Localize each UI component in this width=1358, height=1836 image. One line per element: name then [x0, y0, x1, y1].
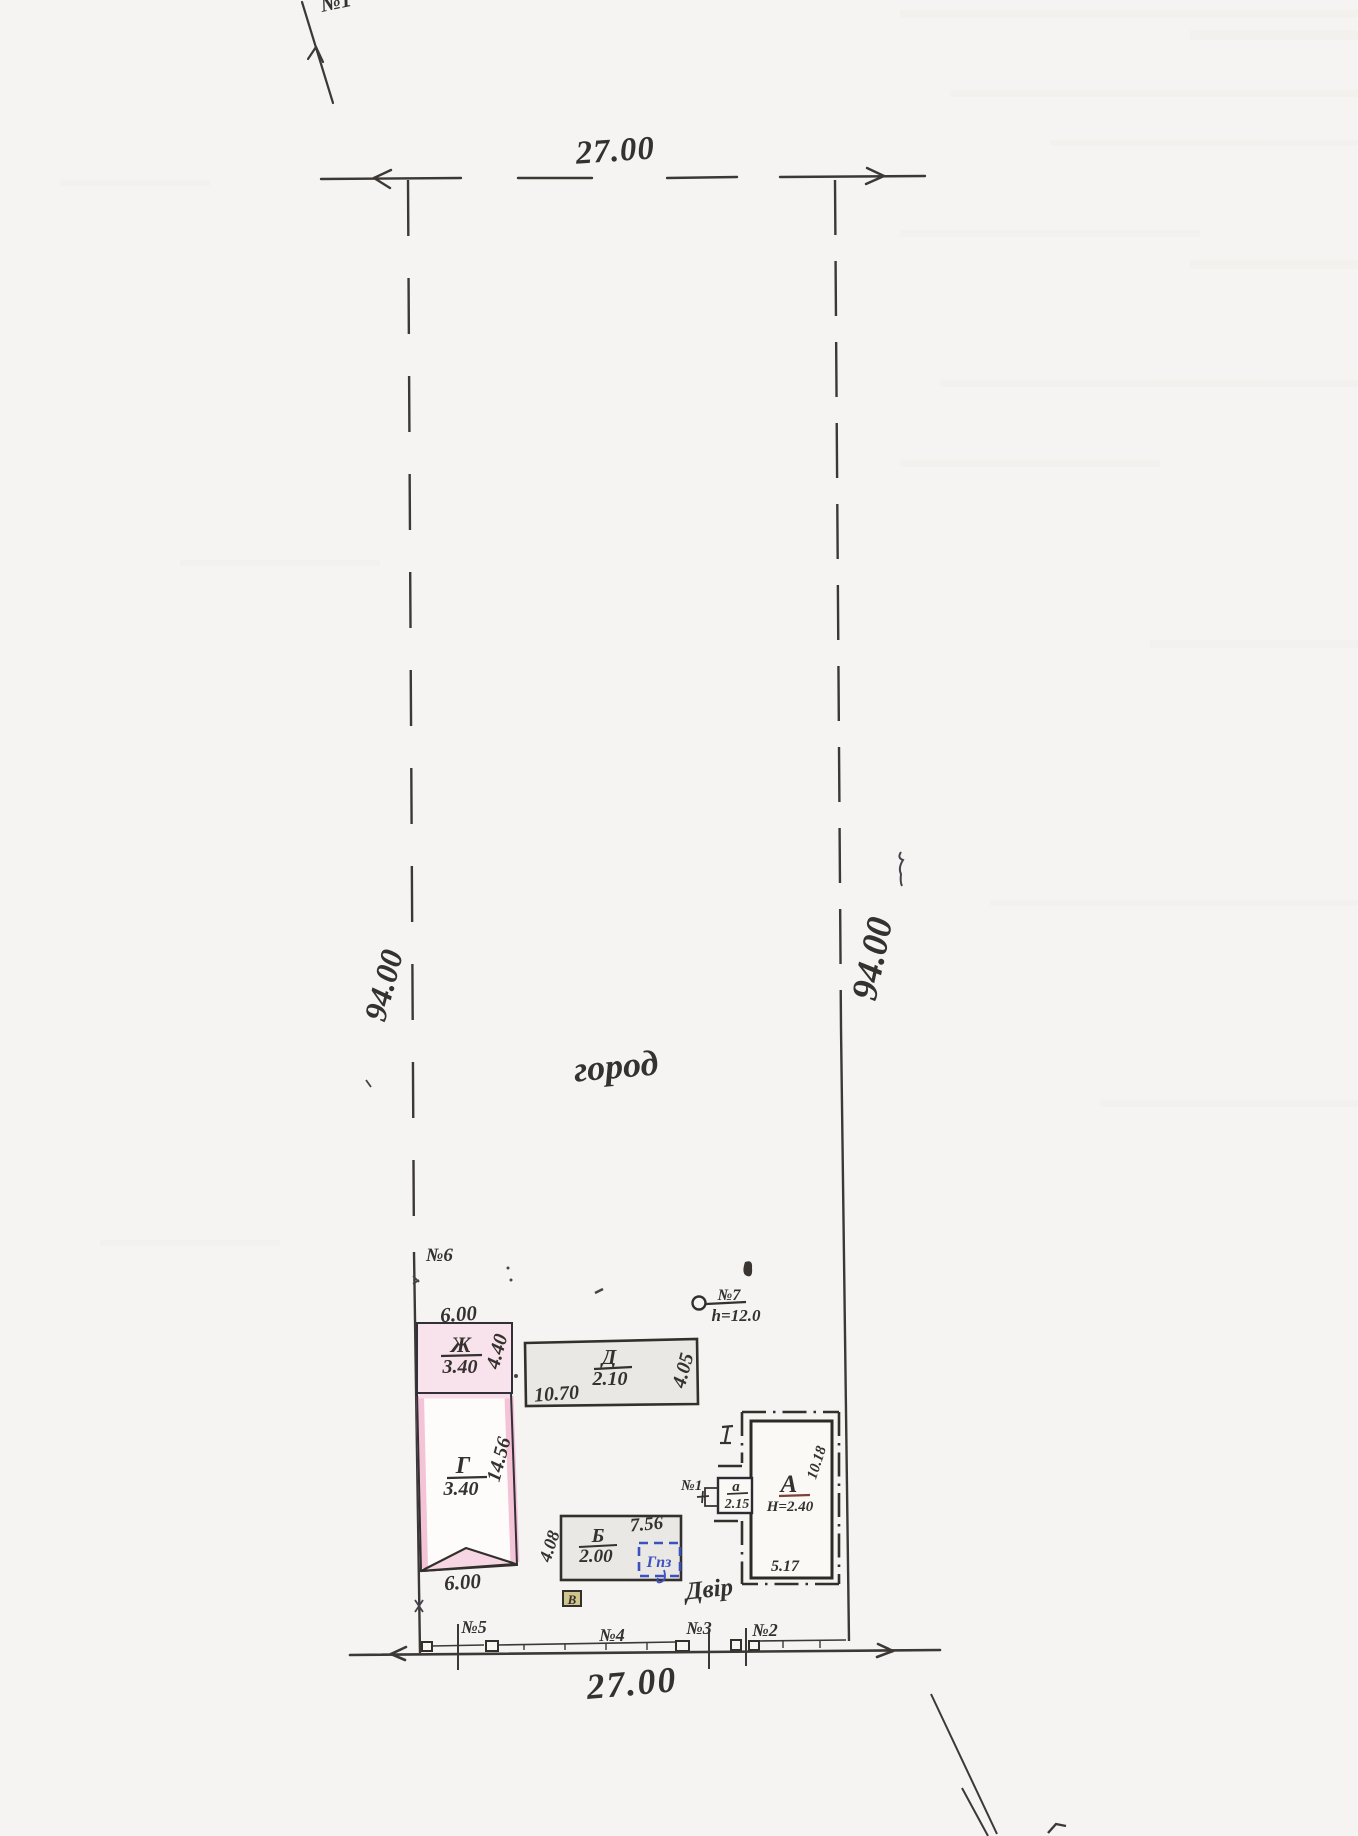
svg-text:3.40: 3.40: [443, 1478, 479, 1500]
svg-text:Г: Г: [455, 1453, 471, 1479]
svg-text:2.10: 2.10: [592, 1368, 628, 1390]
svg-text:6.00: 6.00: [443, 1569, 482, 1596]
svg-text:3.40: 3.40: [442, 1356, 478, 1378]
svg-text:№7: №7: [717, 1287, 742, 1304]
svg-text:Б: Б: [591, 1525, 605, 1547]
svg-text:А: А: [779, 1471, 798, 1498]
svg-text:5.17: 5.17: [771, 1558, 800, 1575]
svg-text:№2: №2: [751, 1620, 777, 1640]
svg-text:27.00: 27.00: [584, 1659, 679, 1707]
svg-text:№6: №6: [425, 1245, 453, 1266]
svg-text:2.15: 2.15: [724, 1497, 750, 1512]
svg-text:№3: №3: [685, 1618, 711, 1638]
svg-text:h=12.0: h=12.0: [712, 1306, 761, 1325]
svg-text:10.70: 10.70: [533, 1381, 579, 1406]
svg-text:7.56: 7.56: [629, 1513, 664, 1537]
svg-text:№1: №1: [680, 1478, 702, 1494]
svg-text:В: В: [567, 1592, 577, 1607]
svg-text:27.00: 27.00: [574, 130, 657, 172]
svg-text:№5: №5: [460, 1617, 486, 1637]
svg-text:Гпз: Гпз: [646, 1554, 672, 1571]
svg-text:Ж: Ж: [449, 1332, 472, 1357]
svg-text:Двір: Двір: [682, 1574, 734, 1606]
svg-text:2.00: 2.00: [578, 1546, 613, 1567]
svg-text:город: город: [572, 1042, 660, 1089]
svg-text:H=2.40: H=2.40: [766, 1499, 814, 1515]
svg-text:Д: Д: [600, 1345, 617, 1369]
svg-text:№4: №4: [598, 1625, 624, 1645]
